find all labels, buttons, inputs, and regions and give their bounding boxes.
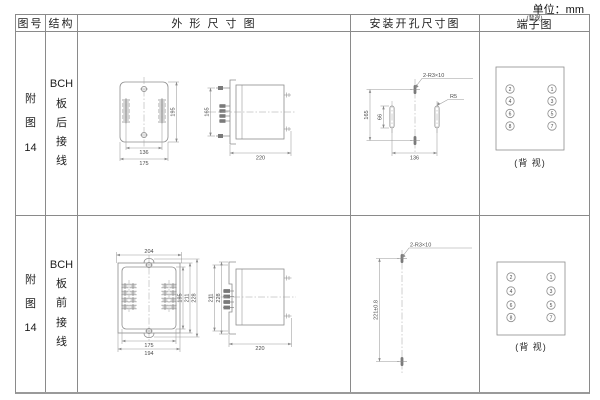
dim-label: 220	[255, 346, 264, 352]
terminal-number: 4	[510, 289, 513, 295]
dim-label: 204	[144, 249, 153, 255]
outline-drawing-row2: 204 195 211 228 175	[78, 216, 351, 391]
side-view: 165 220	[205, 80, 297, 162]
terminal-number: 7	[551, 124, 554, 130]
terminal-number: 2	[510, 275, 513, 281]
dim-label: 195	[178, 293, 184, 302]
row1-structure: BCH 板 后 接 线	[46, 32, 78, 216]
mounting-drawing-row1: 165 66 136 2-R3×10 R5	[351, 32, 480, 215]
terminal-number: 8	[509, 124, 512, 130]
dim-label: 165	[205, 107, 211, 116]
dim-label: 211	[185, 294, 191, 303]
terminal-number: 1	[550, 275, 553, 281]
row2-mounting-cell: 221±0.8 2-R3×10	[351, 216, 480, 392]
dim-label: 175	[144, 343, 153, 349]
dim-label: 221±0.8	[374, 300, 380, 320]
terminal-number: 2	[509, 87, 512, 93]
terminal-number: 3	[550, 289, 553, 295]
row1-figure-no: 附 图 14	[16, 32, 46, 216]
terminal-number: 7	[550, 315, 553, 321]
side-view: 211 228 220	[208, 262, 296, 352]
terminal-number: 1	[551, 87, 554, 93]
terminal-circles: 2 4 6 8 1 3 5 7	[506, 85, 556, 130]
row1-mounting-cell: 165 66 136 2-R3×10 R5	[351, 32, 480, 216]
terminal-drawing-row2: 2 4 6 8 1 3 5 7 (背 视)	[480, 216, 588, 391]
outline-drawing-row1: 136 175 195	[78, 32, 351, 215]
dim-label: 136	[410, 156, 419, 162]
terminal-caption: (背 视)	[514, 157, 546, 168]
header-terminal-title: 端子图	[517, 20, 553, 31]
terminal-number: 5	[550, 303, 553, 309]
row1-terminal-cell: 2 4 6 8 1 3 5 7 (背 视)	[480, 32, 589, 216]
terminal-number: 3	[551, 99, 554, 105]
dim-label: 66	[378, 114, 384, 120]
terminal-number: 8	[510, 315, 513, 321]
dim-label: 228	[216, 293, 222, 302]
terminal-number: 4	[509, 99, 512, 105]
header-terminal: (背视) 端子图	[480, 15, 589, 32]
holes-label: 2-R3×10	[410, 243, 431, 249]
header-figure: 图号	[16, 15, 46, 32]
terminal-number: 6	[510, 303, 513, 309]
terminal-drawing-row1: 2 4 6 8 1 3 5 7 (背 视)	[480, 32, 588, 215]
radius-label: R5	[450, 94, 457, 100]
row2-outline-cell: 204 195 211 228 175	[78, 216, 351, 392]
dim-label: 194	[144, 351, 153, 357]
row2-figure-no: 附 图 14	[16, 216, 46, 392]
drawing-table: 图号 结构 外 形 尺 寸 图 安装开孔尺寸图 (背视) 端子图 附 图 14 …	[15, 14, 590, 394]
row2-terminal-cell: 2 4 6 8 1 3 5 7 (背 视)	[480, 216, 589, 392]
terminal-number: 6	[509, 111, 512, 117]
dim-label: 165	[364, 110, 370, 119]
header-structure: 结构	[46, 15, 78, 32]
front-view: 136 175 195	[120, 77, 179, 167]
dim-label: 228	[192, 293, 198, 302]
terminal-circles: 2 4 6 8 1 3 5 7	[507, 273, 555, 322]
holes-label: 2-R3×10	[423, 73, 444, 79]
dim-label: 136	[139, 150, 148, 156]
header-outline: 外 形 尺 寸 图	[78, 15, 351, 32]
row1-outline-cell: 136 175 195	[78, 32, 351, 216]
header-mounting: 安装开孔尺寸图	[351, 15, 480, 32]
mounting-drawing-row2: 221±0.8 2-R3×10	[351, 216, 480, 391]
dim-label: 211	[209, 294, 215, 303]
dim-label: 220	[256, 156, 265, 162]
terminal-number: 5	[551, 111, 554, 117]
front-view: 204 195 211 228 175	[117, 249, 200, 357]
dim-label: 175	[139, 161, 148, 167]
page: 单位：mm 图号 结构 外 形 尺 寸 图 安装开孔尺寸图 (背视) 端子图 附…	[0, 0, 600, 400]
dim-label: 195	[171, 107, 177, 116]
row2-structure: BCH 板 前 接 线	[46, 216, 78, 392]
terminal-caption: (背 视)	[515, 341, 547, 352]
